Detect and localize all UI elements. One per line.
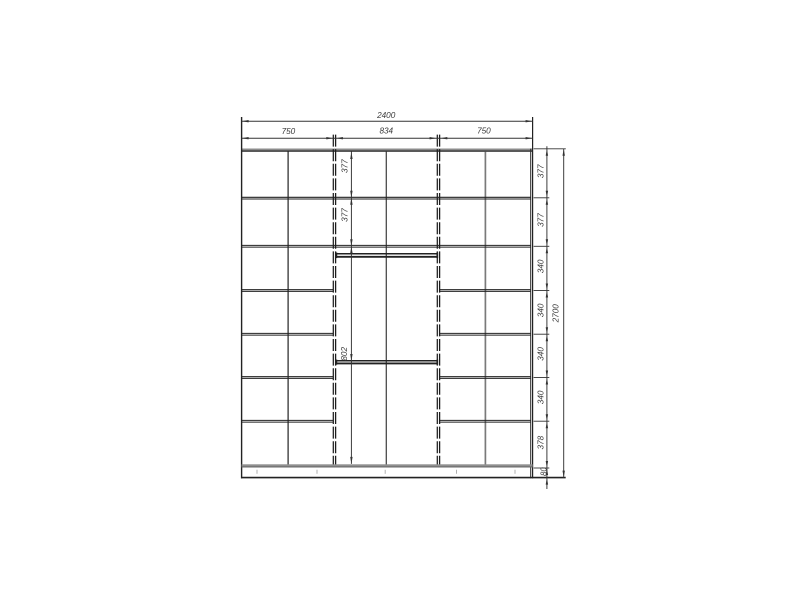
- svg-text:340: 340: [537, 347, 546, 361]
- svg-text:340: 340: [537, 390, 546, 404]
- svg-text:834: 834: [379, 127, 393, 136]
- svg-text:340: 340: [537, 259, 546, 273]
- svg-text:750: 750: [282, 127, 296, 136]
- svg-text:377: 377: [340, 159, 349, 173]
- svg-text:2700: 2700: [552, 304, 561, 324]
- svg-text:377: 377: [340, 208, 349, 222]
- svg-text:802: 802: [340, 347, 349, 361]
- svg-text:377: 377: [537, 164, 546, 178]
- svg-text:80: 80: [539, 467, 548, 476]
- svg-text:340: 340: [537, 303, 546, 317]
- svg-text:750: 750: [477, 127, 491, 136]
- svg-text:2400: 2400: [376, 111, 396, 120]
- svg-text:377: 377: [537, 213, 546, 227]
- svg-text:378: 378: [537, 435, 546, 449]
